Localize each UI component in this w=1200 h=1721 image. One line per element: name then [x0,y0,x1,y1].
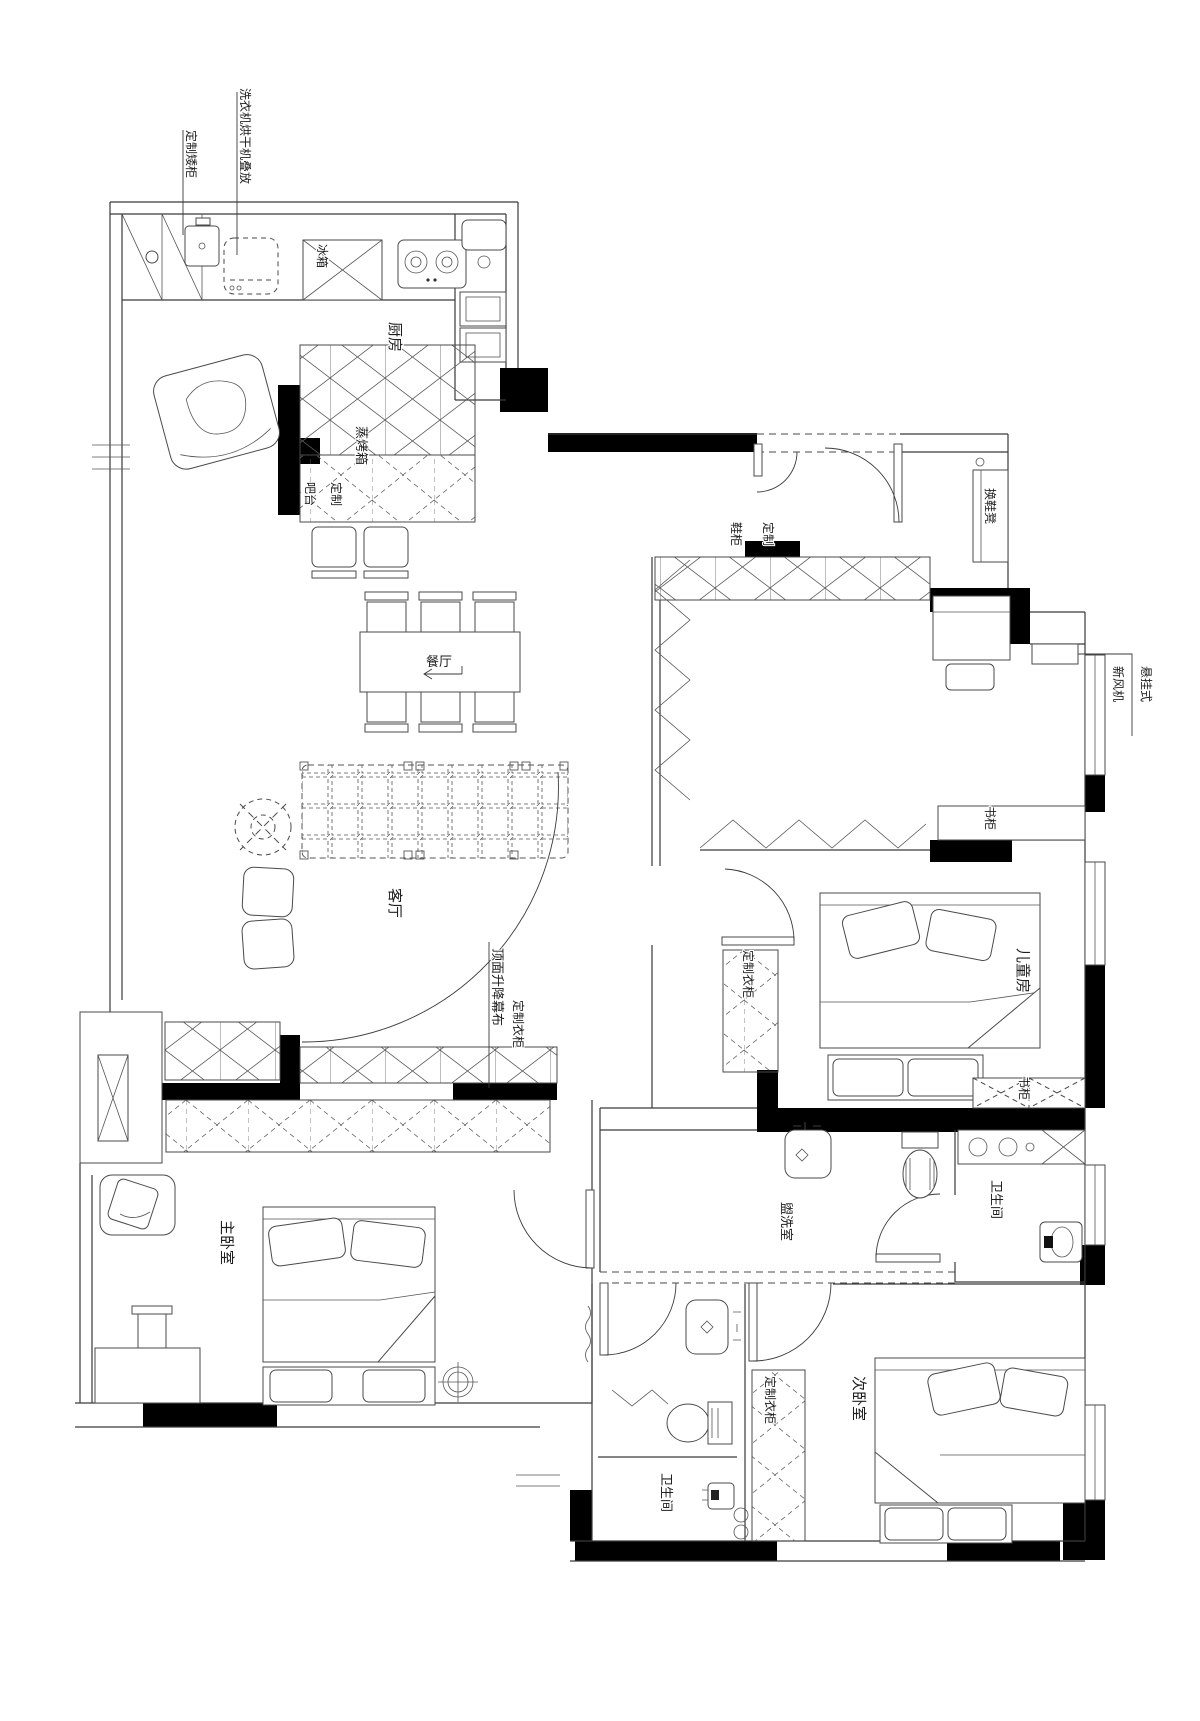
label-shoe-cabinet-col2: 鞋柜 [729,522,744,546]
label-fridge: 冰箱 [315,244,330,268]
dining-chair-icon [419,592,462,632]
second-bedroom-furniture [752,1358,1085,1543]
label-wardrobe-second: 定制衣柜 [763,1376,778,1424]
dining-chair-icon [365,692,408,732]
window-kids-south [1085,862,1105,965]
small-sink-icon [702,1483,734,1509]
bar-stool-icon [364,527,408,578]
bathroom-south-door [600,1283,676,1355]
label-shoe-cabinet-col1: 定制 [761,522,776,546]
folding-door-icon [700,820,926,848]
ottoman-icon [242,867,294,918]
label-custom-bar-col1: 定制 [329,482,344,506]
round-floor-lamp-icon [438,1362,478,1402]
entry-double-door [754,444,902,522]
label-master-bedroom: 主卧室 [218,1220,235,1265]
master-bedroom-door [514,1190,594,1268]
dining-chair-icon [365,592,408,632]
bathroom-east-door [876,1194,940,1262]
kids-desk-icon [933,596,1010,690]
bookcase-north-icon [938,806,1085,840]
hall-cabinet-icon [165,1022,280,1080]
window-second-bedroom [1085,1405,1105,1500]
drain-icon [734,1525,748,1539]
master-bed-icon [263,1207,435,1362]
second-wardrobe-icon [752,1370,805,1541]
label-washer-dryer: 洗衣机烘干机叠放 [238,88,253,184]
washbasin-icon [785,1122,831,1178]
sofa-icon [302,765,568,858]
label-fresh-air-col1: 悬挂式 [1139,666,1153,702]
label-bookcase-north: 书柜 [983,806,997,830]
floor-plan-canvas: 定制矮柜 洗衣机烘干机叠放 冰箱 厨房 蒸烤箱 定制 吧台 餐厅 客厅 顶面升降… [0,0,1200,1721]
toilet-icon [667,1402,732,1444]
label-fresh-air-col2: 新风机 [1111,666,1126,702]
gas-hob-icon [398,240,466,288]
label-kitchen: 厨房 [386,322,403,352]
window-bathroom-east [1085,1165,1105,1245]
armchair-icon [100,1175,175,1235]
island-steam-oven-cabinet [300,345,475,522]
floor-lamp-icon [235,799,291,855]
label-steam-oven: 蒸烤箱 [354,426,369,465]
washbasin-icon [686,1300,741,1354]
washroom-fixtures [785,1122,1085,1262]
kids-bed-icon [820,893,1040,1048]
label-dining: 餐厅 [426,654,452,669]
kitchen-sink-icon [462,220,506,268]
second-bed-bench-icon [880,1505,1012,1543]
label-bookcase-south: 书柜 [1017,1076,1031,1100]
double-vanity-icon [958,1130,1085,1164]
kitchen-fixtures [122,214,506,578]
fridge-icon [303,240,382,300]
floor-drain-icon [146,251,158,263]
master-bedroom-furniture [95,1022,557,1405]
squat-toilet-icon [902,1132,938,1198]
label-bathroom-south: 卫生间 [659,1473,674,1512]
lounge-chair-icon [150,351,283,473]
second-bedroom-door [749,1283,831,1361]
label-bathroom-east: 卫生间 [989,1180,1004,1219]
shower-door-icon [612,1390,668,1406]
label-wardrobe-hall: 定制衣柜 [511,1000,526,1048]
drain-icon [734,1508,748,1522]
master-bed-bench-icon [263,1367,435,1405]
hall-wardrobe-icon [300,1047,557,1083]
bay-window-master [80,1012,162,1163]
bar-stool-icon [312,527,356,578]
laundry-sink-icon [185,218,219,266]
kids-bed-bench-icon [828,1055,983,1100]
label-living: 客厅 [386,888,403,918]
second-bed-icon [875,1358,1085,1503]
dresser-icon [95,1306,200,1403]
dining-chair-icon [473,592,516,632]
washer-dryer-icon [224,238,278,294]
floor-plan-drawing: 定制矮柜 洗衣机烘干机叠放 冰箱 厨房 蒸烤箱 定制 吧台 餐厅 客厅 顶面升降… [0,0,1200,1721]
label-ceiling-screen: 顶面升降幕布 [490,948,505,1026]
dining-chair-icon [473,692,516,732]
dining-chair-icon [419,692,462,732]
label-kids-room: 儿童房 [1014,948,1032,993]
label-washroom: 盥洗室 [779,1202,794,1241]
label-custom-bar-col2: 吧台 [303,482,318,506]
window-kids-north [1085,655,1105,775]
label-custom-low-cabinet: 定制矮柜 [184,130,199,178]
shower-curtain-icon [586,1306,591,1362]
kids-room-door [722,869,794,945]
master-wardrobe-icon [166,1100,550,1152]
ottoman-icon [241,918,294,969]
label-shoe-bench: 换鞋凳 [983,488,998,524]
shoe-cabinet-icon [655,557,930,600]
wall-hung-toilet-icon [1040,1222,1082,1262]
label-wardrobe-kids: 定制衣柜 [741,950,756,998]
label-second-bedroom: 次卧室 [850,1376,867,1421]
